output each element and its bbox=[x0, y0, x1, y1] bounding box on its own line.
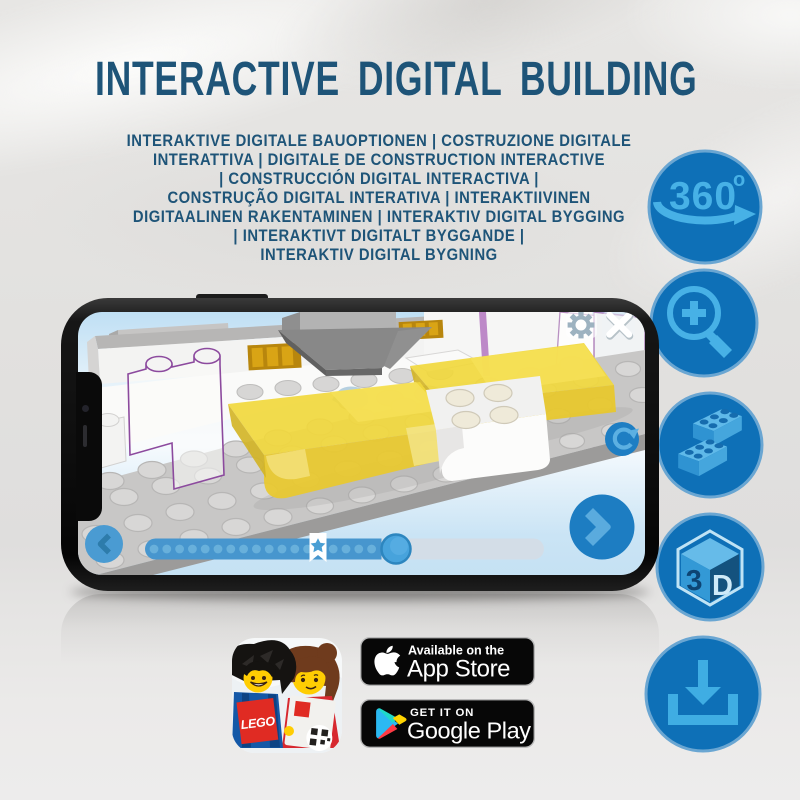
svg-text:D: D bbox=[712, 570, 733, 602]
svg-text:o: o bbox=[733, 169, 745, 191]
svg-text:3: 3 bbox=[685, 565, 703, 598]
svg-text:Google Play: Google Play bbox=[407, 718, 531, 744]
svg-text:360: 360 bbox=[669, 175, 737, 218]
svg-text:App Store: App Store bbox=[407, 656, 510, 683]
